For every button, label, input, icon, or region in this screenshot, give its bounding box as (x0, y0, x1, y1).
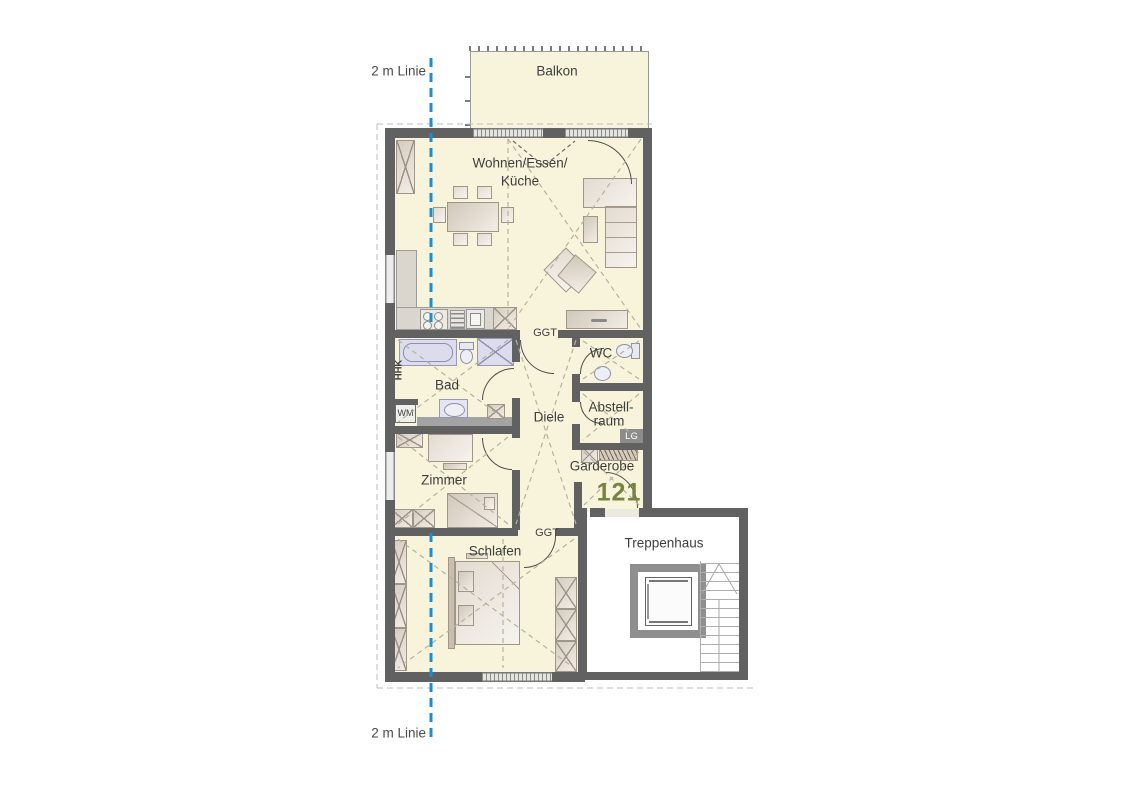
bathtub (399, 339, 457, 366)
chair (453, 233, 468, 246)
wall-segment (512, 338, 520, 362)
basin-oval (444, 403, 465, 417)
kitchen-cabinet (493, 307, 517, 330)
wall-segment (512, 470, 520, 530)
stove-icon (420, 309, 448, 330)
wall-segment (572, 383, 652, 391)
room-label-wohnen-line2: Küche (501, 174, 539, 189)
wall-segment (385, 426, 520, 434)
wall-segment (643, 128, 652, 512)
burner-icon (434, 321, 443, 330)
burner-icon (423, 312, 432, 321)
wardrobe (555, 609, 577, 641)
chair (453, 186, 468, 199)
wardrobe (413, 509, 435, 528)
wall-segment (739, 508, 748, 680)
wall-segment (578, 672, 748, 680)
sofa (605, 206, 637, 268)
wall-segment (385, 330, 520, 338)
room-label-bad: Bad (435, 378, 459, 393)
pillow (484, 497, 495, 510)
line-label-bottom: 2 m Linie (371, 726, 426, 741)
wardrobe (396, 432, 423, 448)
bed-double (455, 561, 520, 645)
room-label-garderobe: Garderobe (570, 459, 635, 474)
toilet-bowl-icon (460, 349, 473, 364)
dishwasher-icon (450, 310, 465, 329)
side-table (583, 216, 598, 243)
line-label-top: 2 m Linie (371, 64, 426, 79)
desk-chair (443, 463, 467, 470)
wardrobe (555, 577, 577, 609)
wall-segment (572, 443, 652, 450)
wardrobe (555, 641, 577, 672)
hhk-label: HHK (394, 360, 405, 381)
wardrobe (396, 140, 415, 194)
window (482, 672, 552, 682)
room-label-balkon: Balkon (536, 64, 577, 79)
elevator-rail (647, 584, 649, 619)
pillow (458, 571, 474, 592)
kitchen-sink-icon (466, 309, 485, 329)
window (385, 255, 395, 303)
room-label-abstellraum-line1: Abstell- (588, 400, 633, 415)
ggt-label-bottom: GGT (535, 527, 559, 539)
burner-icon (434, 312, 443, 321)
washbasin (439, 399, 468, 418)
burner-icon (423, 321, 432, 330)
pillow (458, 605, 474, 626)
room-label-zimmer: Zimmer (421, 473, 467, 488)
floor-plan: WM HHK LG (0, 0, 1123, 794)
elevator-door-line (649, 621, 688, 623)
wall-segment (385, 399, 418, 405)
toilet-bowl-icon (616, 344, 633, 358)
bed-single (447, 493, 498, 528)
wm-label: WM (398, 408, 414, 418)
window (473, 128, 543, 138)
shower (477, 338, 514, 366)
sink-basin (470, 313, 481, 326)
bathtub-inner (403, 343, 453, 362)
room-label-treppenhaus: Treppenhaus (624, 536, 703, 551)
chair (477, 233, 492, 246)
washing-machine: WM (395, 403, 416, 423)
entry-threshold (605, 509, 639, 517)
chair (477, 186, 492, 199)
apartment-number: 121 (597, 479, 642, 508)
lg-badge: LG (620, 429, 643, 443)
wall-segment (578, 508, 587, 672)
balkon-railing-left (465, 54, 470, 126)
room-label-wc: WC (590, 346, 613, 361)
blanket-fold (492, 562, 520, 590)
chair (501, 207, 514, 223)
window (565, 128, 628, 138)
bed-headboard (448, 557, 455, 649)
room-label-schlafen: Schlafen (469, 544, 522, 559)
wall-segment (590, 508, 605, 517)
elevator-car (645, 577, 692, 626)
wall-segment (385, 128, 395, 682)
wall-segment (639, 508, 748, 517)
wall-segment (385, 528, 518, 536)
wall-segment (572, 338, 580, 347)
dining-table (447, 202, 499, 232)
lg-label: LG (625, 431, 638, 442)
chair (433, 207, 446, 223)
sideboard (566, 310, 628, 329)
wall-segment (558, 330, 652, 338)
window (385, 452, 395, 500)
room-label-diele: Diele (534, 410, 565, 425)
stairs (700, 561, 739, 672)
bath-cabinet (487, 404, 505, 419)
room-label-wohnen-line1: Wohnen/Essen/ (472, 156, 567, 171)
desk (428, 434, 473, 462)
sideboard-handle (591, 319, 607, 322)
ggt-label-top: GGT (533, 327, 557, 339)
room-label-abstellraum-line2: raum (594, 414, 625, 429)
balkon-railing-top (469, 46, 648, 51)
elevator-door-line (649, 580, 688, 582)
